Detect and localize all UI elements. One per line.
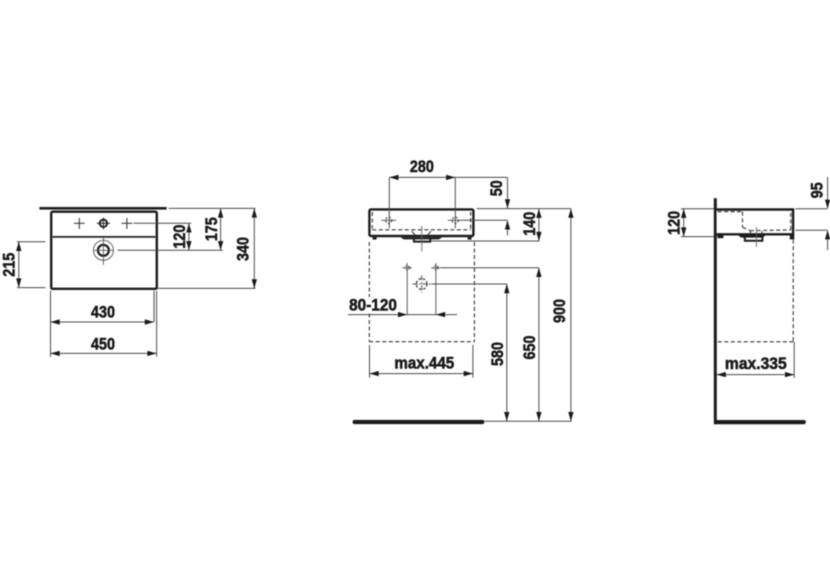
svg-text:120: 120 (666, 211, 684, 235)
svg-text:80-120: 80-120 (349, 297, 397, 315)
svg-text:175: 175 (203, 217, 221, 241)
svg-text:430: 430 (91, 304, 115, 322)
svg-text:120: 120 (171, 225, 189, 249)
svg-text:280: 280 (410, 158, 434, 176)
svg-text:580: 580 (489, 342, 507, 366)
svg-text:650: 650 (521, 336, 539, 360)
svg-text:50: 50 (488, 180, 506, 196)
svg-text:max.335: max.335 (725, 355, 787, 373)
svg-text:215: 215 (1, 252, 19, 276)
svg-text:140: 140 (521, 212, 539, 236)
svg-text:900: 900 (551, 299, 569, 323)
svg-text:95: 95 (808, 182, 826, 198)
svg-text:max.445: max.445 (394, 355, 454, 373)
svg-text:450: 450 (91, 336, 115, 354)
svg-text:340: 340 (235, 237, 253, 261)
